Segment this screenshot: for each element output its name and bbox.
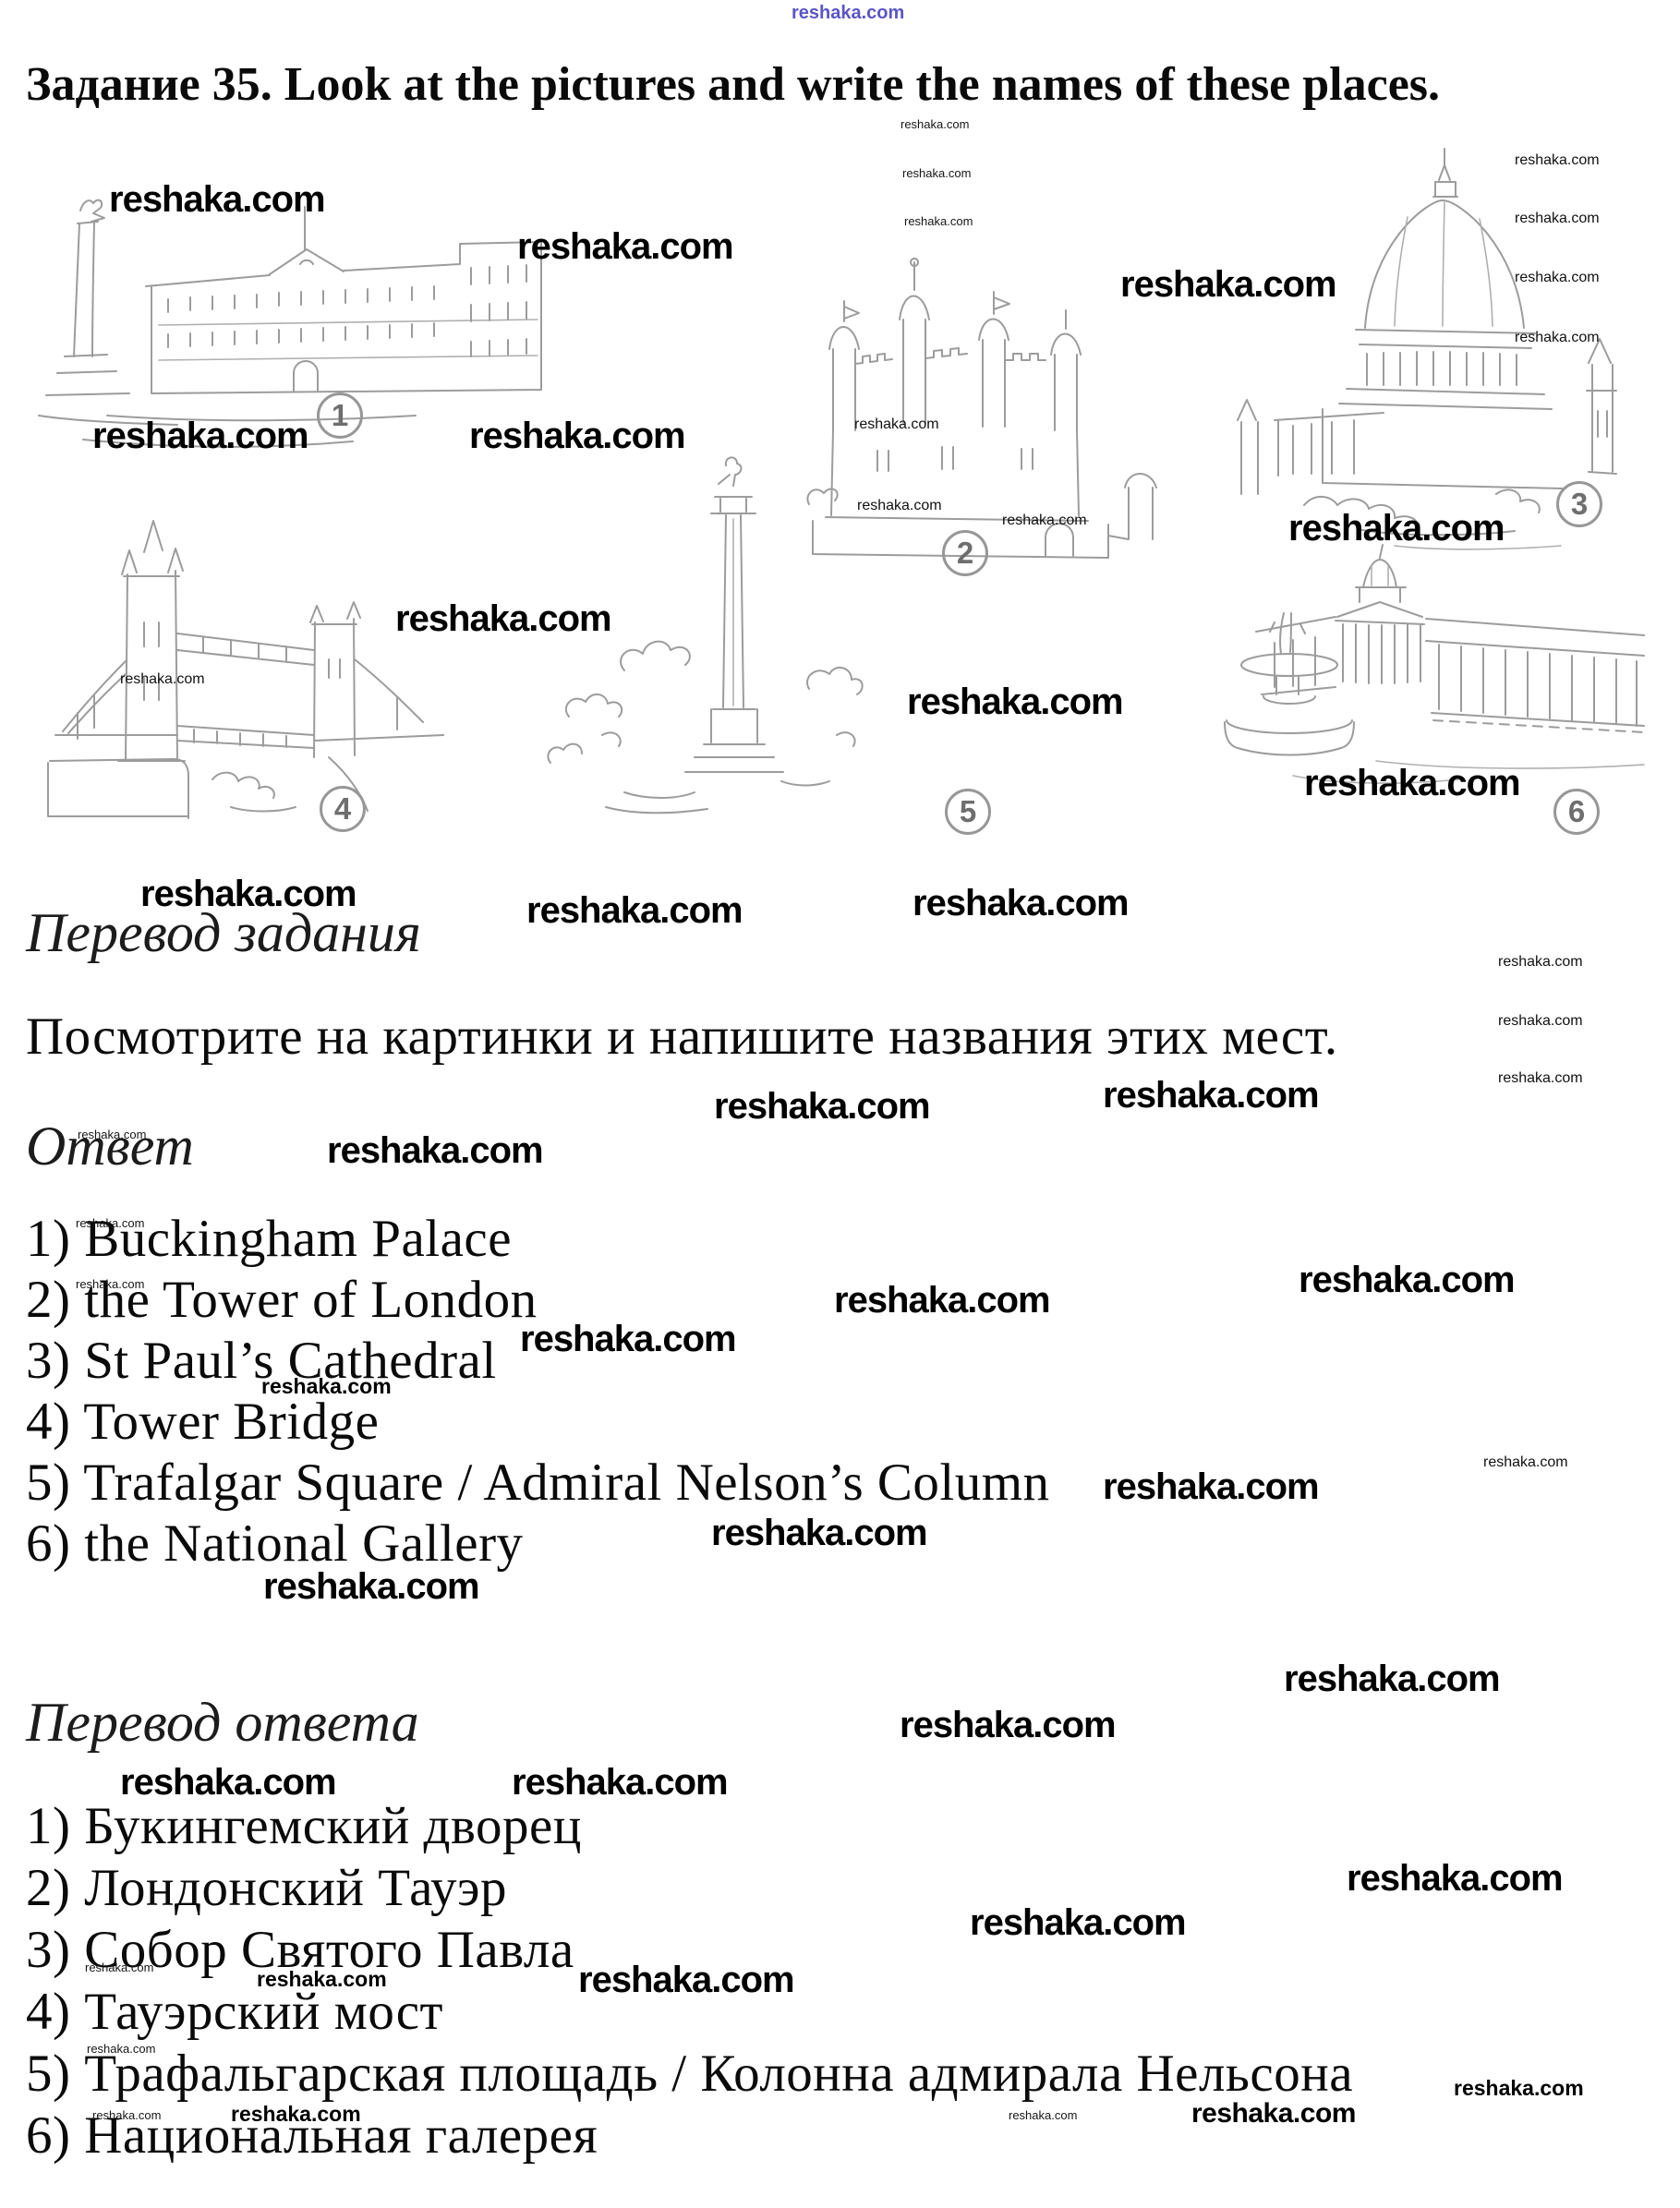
answer-ru-5: 5) Трафальгарская площадь / Колонна адми… [26,2043,1353,2105]
watermark: reshaka.com [1304,765,1520,802]
watermark: reshaka.com [834,1282,1050,1319]
figure-number-5: 5 [945,789,991,835]
watermark: reshaka.com [900,118,969,130]
figure-number-1: 1 [317,392,363,439]
page-title: Задание 35. Look at the pictures and wri… [26,57,1440,112]
figure-number-2: 2 [942,530,988,576]
watermark: reshaka.com [1191,2100,1356,2128]
watermark: reshaka.com [1483,1455,1568,1470]
answer-en-5: 5) Trafalgar Square / Admiral Nelson’s C… [26,1453,1050,1514]
watermark: reshaka.com [1002,513,1087,528]
watermark: reshaka.com [900,1707,1116,1743]
watermark: reshaka.com [1515,211,1600,226]
answer-ru-6: 6) Национальная галерея [26,2105,1353,2166]
watermark: reshaka.com [1498,955,1583,970]
watermark: reshaka.com [257,1969,387,1990]
watermark: reshaka.com [140,875,357,912]
watermark: reshaka.com [231,2104,361,2125]
watermark: reshaka.com [1498,1014,1583,1029]
watermark: reshaka.com [512,1764,728,1801]
watermark: reshaka.com [395,600,611,637]
watermark: reshaka.com [526,892,743,929]
watermark: reshaka.com [1515,331,1600,345]
watermark: reshaka.com [261,1376,392,1397]
watermark: reshaka.com [87,2043,155,2055]
watermark: reshaka.com [1454,2078,1584,2099]
answer-ru-1: 1) Букингемский дворец [26,1795,1353,1857]
watermark: reshaka.com [76,1217,144,1229]
watermark: reshaka.com [1515,271,1600,285]
watermark: reshaka.com [1299,1261,1515,1298]
watermark: reshaka.com [854,417,939,432]
watermark: reshaka.com [1009,2109,1077,2121]
watermark: reshaka.com [1103,1468,1319,1505]
watermark: reshaka.com [92,2109,161,2121]
watermark: reshaka.com [85,1961,153,1973]
watermark: reshaka.com [1498,1071,1583,1086]
watermark: reshaka.com [327,1132,543,1169]
answer-en-4: 4) Tower Bridge [26,1392,1050,1453]
watermark: reshaka.com [902,167,971,179]
watermark: reshaka.com [120,1764,336,1801]
watermark: reshaka.com [578,1961,794,1998]
watermark: reshaka.com [1515,153,1600,168]
watermark: reshaka.com [109,181,325,218]
watermark: reshaka.com [904,215,973,227]
watermark: reshaka.com [913,885,1129,922]
watermark: reshaka.com [792,4,904,22]
translation-answer-heading: Перевод ответа [26,1692,419,1753]
watermark: reshaka.com [907,683,1123,720]
figure-number-4: 4 [320,786,366,832]
answer-en-1: 1) Buckingham Palace [26,1209,1050,1270]
watermark: reshaka.com [711,1514,927,1551]
watermark: reshaka.com [520,1321,736,1357]
watermark: reshaka.com [120,672,205,687]
watermark: reshaka.com [1103,1077,1319,1114]
watermark: reshaka.com [76,1278,144,1290]
watermark: reshaka.com [1288,510,1505,547]
figure-number-6: 6 [1553,789,1600,835]
watermark: reshaka.com [970,1904,1186,1941]
task-translation-text: Посмотрите на картинки и напишите назван… [26,1008,1338,1067]
figure-number-3: 3 [1556,481,1602,527]
answer-heading: Ответ [26,1116,194,1176]
watermark: reshaka.com [857,499,942,513]
watermark: reshaka.com [263,1568,479,1605]
watermark: reshaka.com [469,417,685,454]
watermark: reshaka.com [92,417,308,454]
worksheet-page: Задание 35. Look at the pictures and wri… [0,0,1680,2208]
watermark: reshaka.com [78,1128,146,1140]
watermark: reshaka.com [1284,1660,1500,1697]
watermark: reshaka.com [517,228,733,265]
tower-bridge-sketch [37,493,466,830]
watermark: reshaka.com [714,1088,930,1125]
watermark: reshaka.com [1347,1860,1563,1897]
watermark: reshaka.com [1120,266,1336,303]
